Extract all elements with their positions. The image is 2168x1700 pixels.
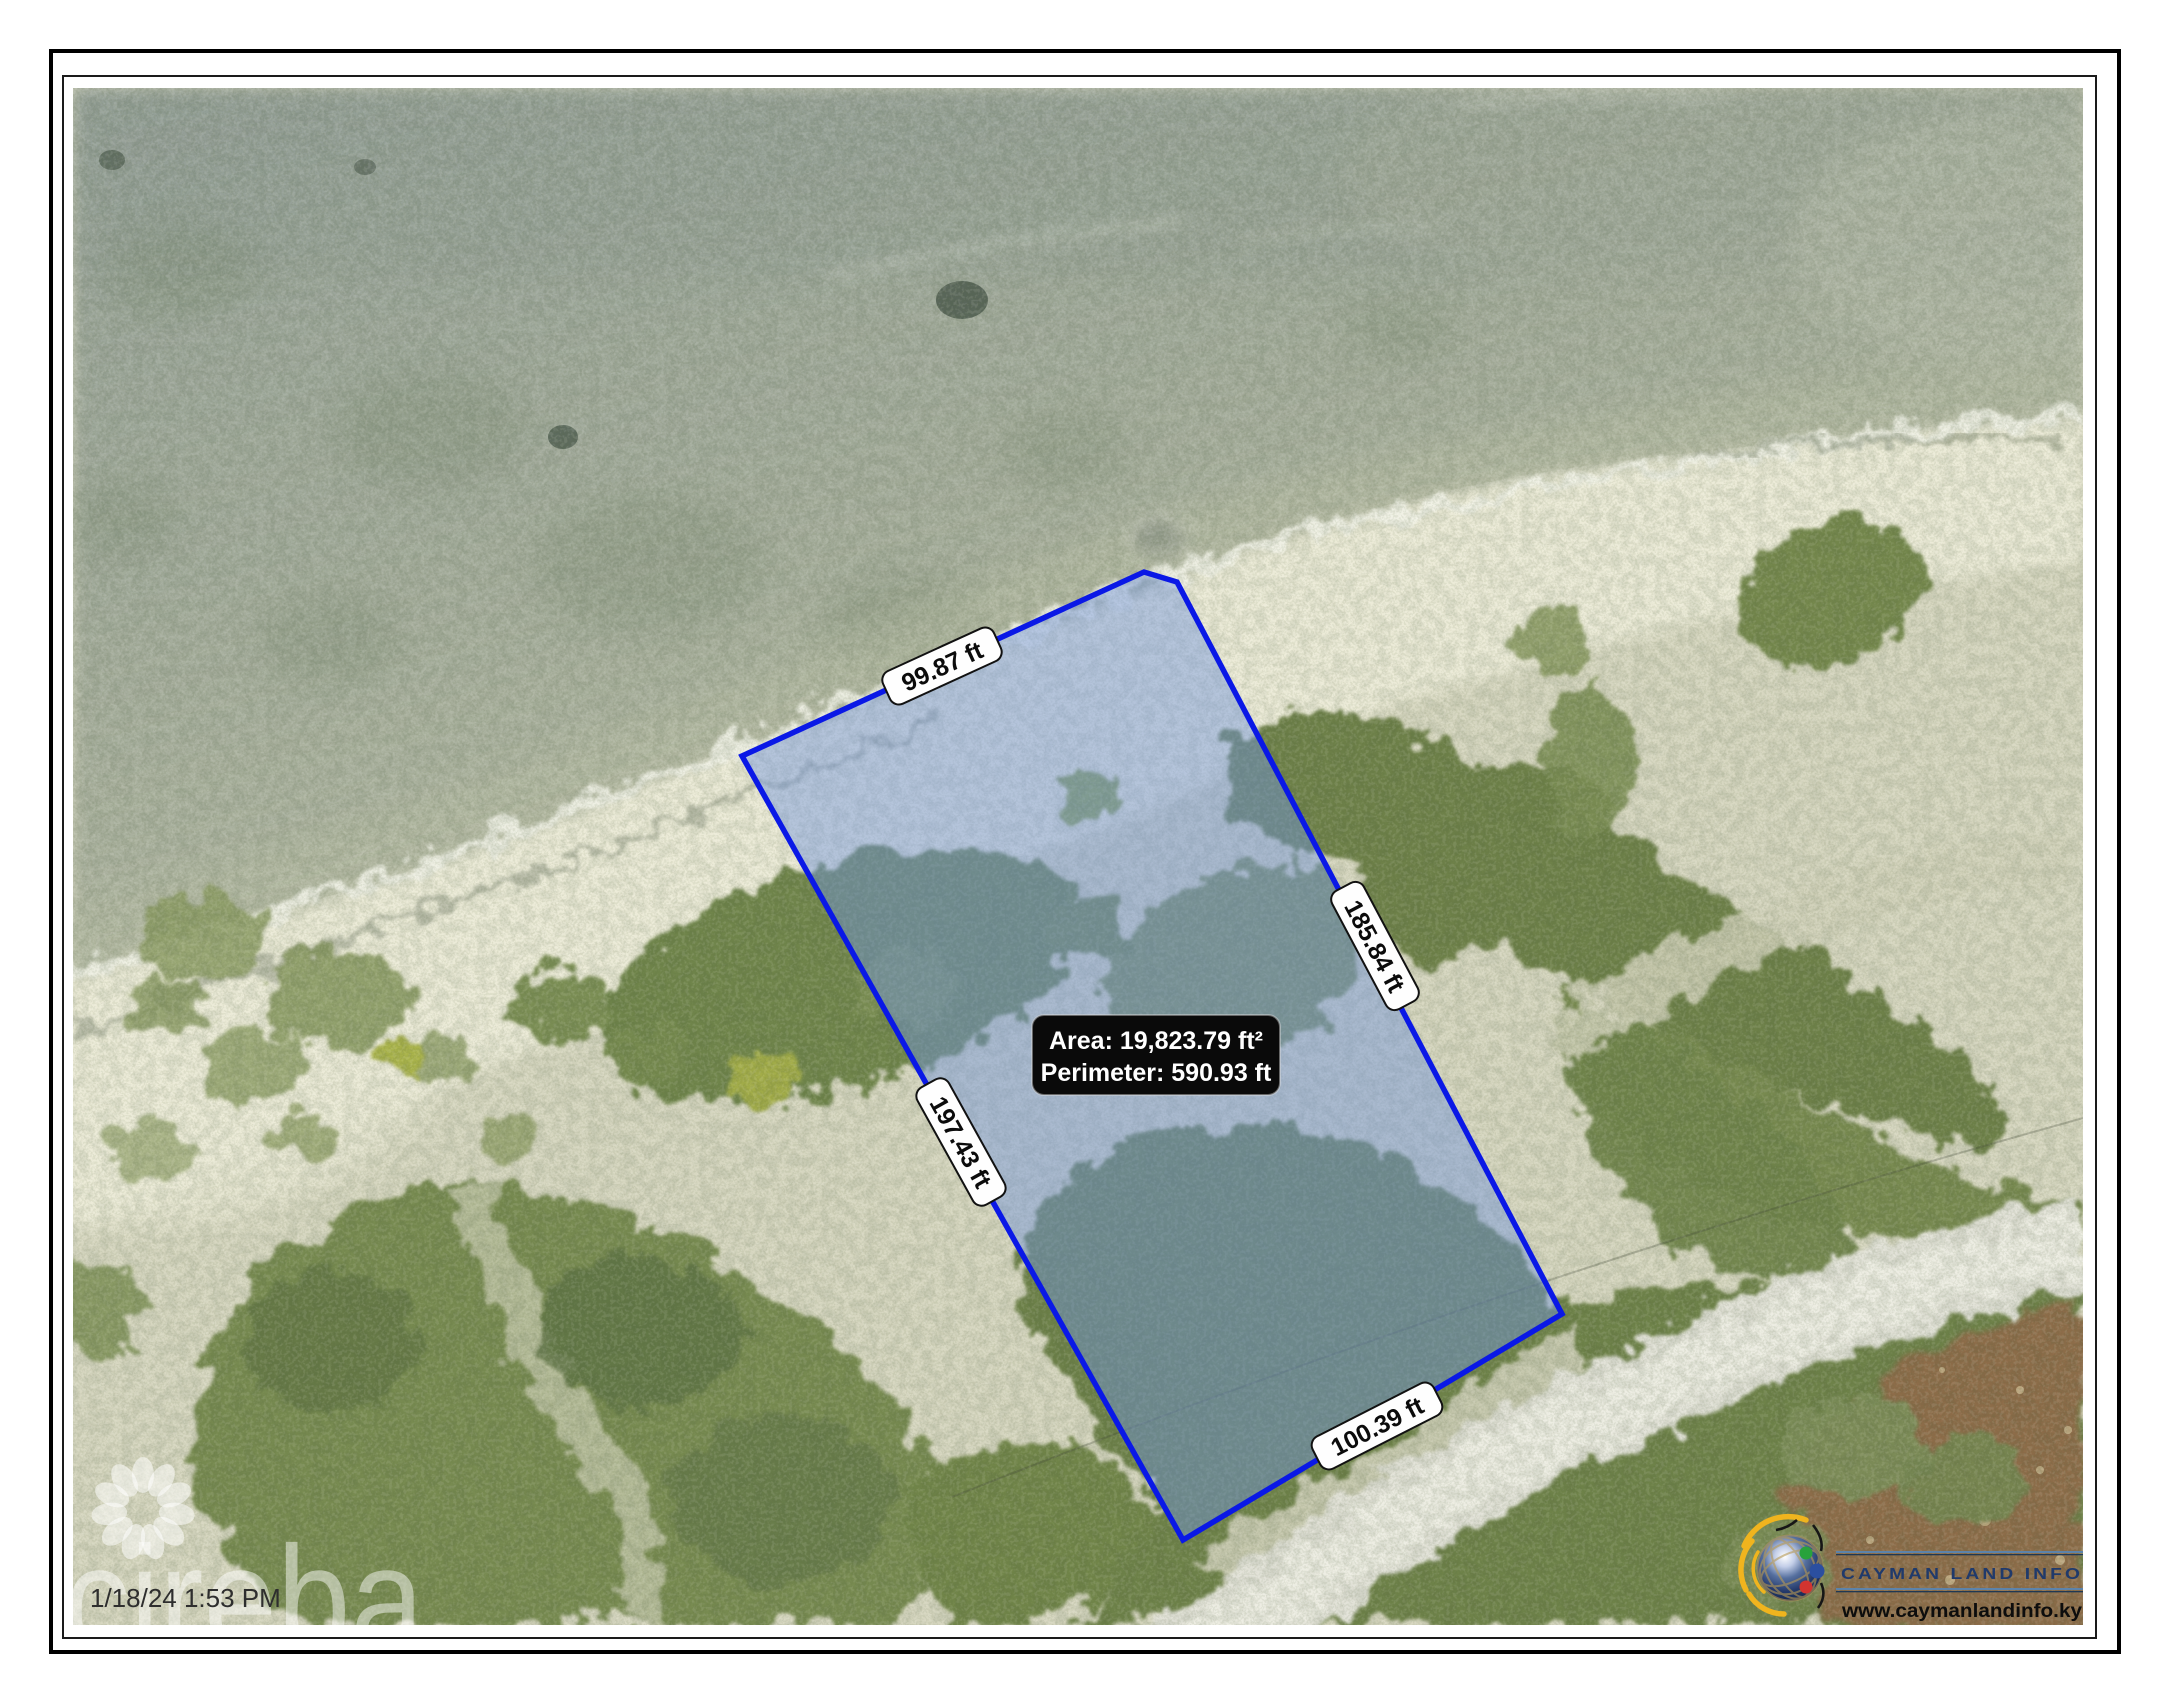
svg-text:Area: 19,823.79 ft²: Area: 19,823.79 ft²: [1049, 1027, 1263, 1055]
svg-text:CAYMAN LAND INFO: CAYMAN LAND INFO: [1841, 1566, 2083, 1583]
svg-text:1/18/24 1:53 PM: 1/18/24 1:53 PM: [90, 1583, 281, 1613]
svg-text:Perimeter: 590.93 ft: Perimeter: 590.93 ft: [1041, 1059, 1272, 1087]
svg-text:www.caymanlandinfo.ky: www.caymanlandinfo.ky: [1841, 1601, 2083, 1622]
